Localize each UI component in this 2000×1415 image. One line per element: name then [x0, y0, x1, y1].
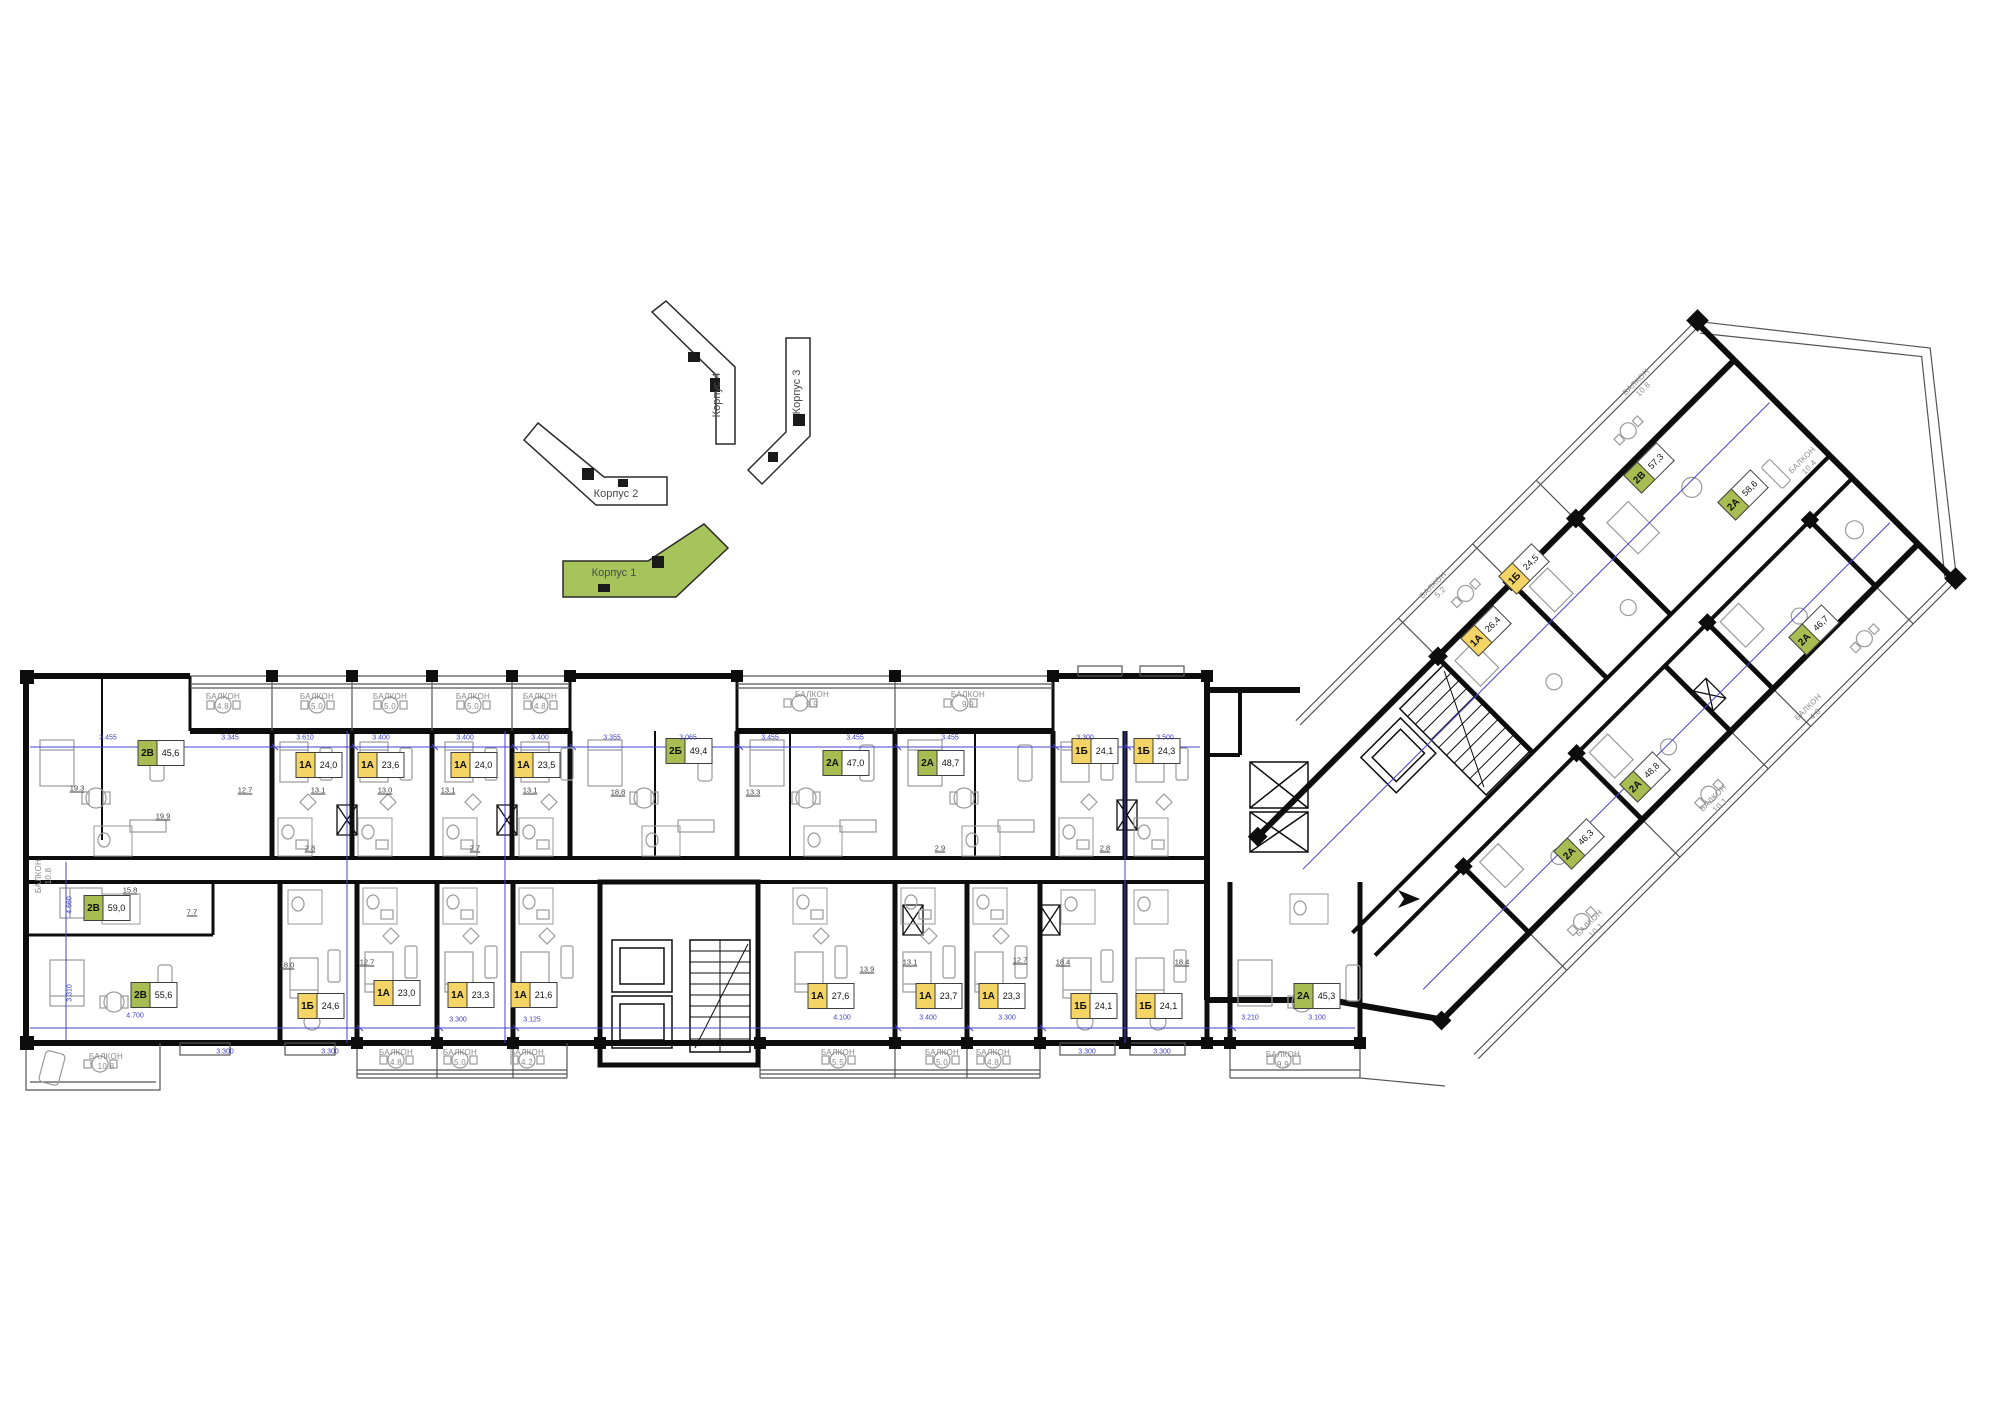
balcony-label: БАЛКОН 5.0 [282, 692, 352, 712]
apartment-badge: 2В 55,6 [131, 982, 178, 1008]
room-area-label: 2.8 [1100, 844, 1110, 853]
balcony-area: 9.9 [933, 700, 1003, 710]
apartment-badge: 2А 48,8 [1619, 751, 1671, 803]
dimension-label: 3.300 [449, 1017, 467, 1024]
apartment-type: 1А [448, 982, 468, 1008]
balcony-area: 5.0 [425, 1058, 495, 1068]
balcony-word: БАЛКОН [34, 841, 44, 911]
room-area-label: 18.4 [1175, 958, 1190, 967]
building-name: Корпус 3 [791, 370, 803, 415]
room-area-label: 18.8 [611, 788, 626, 797]
balcony-word: БАЛКОН [71, 1052, 141, 1062]
balcony-word: БАЛКОН [803, 1048, 873, 1058]
balcony-area: 5.0 [438, 702, 508, 712]
balcony-label: БАЛКОН 4.8 [188, 692, 258, 712]
balcony-word: БАЛКОН [361, 1048, 431, 1058]
dimension-label: 4.660 [67, 896, 74, 914]
dimension-label: 3.300 [1076, 735, 1094, 742]
balcony-label: БАЛКОН 4.8 [958, 1048, 1028, 1068]
room-area-label: 2.9 [935, 844, 945, 853]
site-plan-building-label: Корпус 3 [791, 370, 803, 415]
apartment-badge: 2В 59,0 [84, 895, 131, 921]
dimension-label: 3.300 [1153, 1049, 1171, 1056]
room-area-label: 13.3 [746, 788, 761, 797]
room-area-label: 7.7 [187, 908, 197, 917]
balcony-word: БАЛКОН [355, 692, 425, 702]
dimension-label: 3.400 [372, 735, 390, 742]
balcony-area: 4.8 [188, 702, 258, 712]
apartment-badge: 1А 23,5 [514, 752, 561, 778]
labels-overlay: Корпус 4 Корпус 3 Корпус 2 Корпус 1 2В 4… [0, 0, 2000, 1415]
balcony-word: БАЛКОН [1248, 1050, 1318, 1060]
apartment-area: 55,6 [151, 982, 178, 1008]
balcony-word: БАЛКОН [425, 1048, 495, 1058]
apartment-type: 1А [358, 752, 378, 778]
dimension-label: 3.300 [321, 1049, 339, 1056]
balcony-word: БАЛКОН [188, 692, 258, 702]
room-area-label: 13.1 [441, 786, 456, 795]
balcony-word: БАЛКОН [438, 692, 508, 702]
apartment-area: 24,1 [1092, 738, 1119, 764]
apartment-badge: 2В 45,6 [138, 740, 185, 766]
balcony-word: БАЛКОН [777, 690, 847, 700]
balcony-label: БАЛКОН 10.8 [71, 1052, 141, 1072]
apartment-area: 24,0 [316, 752, 343, 778]
balcony-label: БАЛКОН 10.8 [1608, 354, 1672, 418]
building-name: Корпус 2 [594, 488, 639, 500]
dimension-label: 3.500 [1156, 735, 1174, 742]
apartment-badge: 2Б 49,4 [666, 738, 713, 764]
balcony-word: БАЛКОН [505, 692, 575, 702]
room-area-label: 2.7 [470, 844, 480, 853]
apartment-type: 2А [918, 750, 938, 776]
site-plan-building-label: Корпус 1 [592, 567, 637, 579]
apartment-area: 23,0 [394, 980, 421, 1006]
dimension-label: 3.400 [531, 735, 549, 742]
apartment-type: 2В [131, 982, 151, 1008]
apartment-area: 23,3 [999, 983, 1026, 1009]
balcony-label: БАЛКОН 9.9 [1248, 1050, 1318, 1070]
room-area-label: 13.1 [311, 786, 326, 795]
apartment-area: 23,3 [468, 982, 495, 1008]
apartment-type: 2Б [666, 738, 686, 764]
balcony-label: БАЛКОН 4.8 [1780, 679, 1844, 743]
apartment-type: 1А [296, 752, 316, 778]
room-area-label: 2.8 [305, 844, 315, 853]
apartment-badge: 2В 57,3 [1623, 442, 1675, 494]
room-area-label: 18.4 [1056, 958, 1071, 967]
dimension-label: 3.455 [846, 735, 864, 742]
dimension-label: 3.400 [456, 735, 474, 742]
room-area-label: 19.3 [70, 784, 85, 793]
room-area-label: 19.9 [156, 812, 171, 821]
apartment-type: 1А [916, 983, 936, 1009]
apartment-badge: 1А 23,0 [374, 980, 421, 1006]
apartment-badge: 1Б 24,3 [1134, 738, 1181, 764]
apartment-type: 2В [138, 740, 158, 766]
apartment-type: 1А [514, 752, 534, 778]
balcony-word: БАЛКОН [492, 1048, 562, 1058]
room-area-label: 12.7 [1013, 956, 1028, 965]
balcony-word: БАЛКОН [282, 692, 352, 702]
balcony-area: 9.9 [777, 700, 847, 710]
balcony-label: БАЛКОН 5.0 [355, 692, 425, 712]
apartment-badge: 1А 24,0 [451, 752, 498, 778]
apartment-type: 2А [823, 750, 843, 776]
apartment-area: 48,7 [938, 750, 965, 776]
apartment-area: 23,7 [936, 983, 963, 1009]
balcony-label: БАЛКОН 5.0 [425, 1048, 495, 1068]
apartment-type: 1А [511, 982, 531, 1008]
apartment-badge: 1Б 24,1 [1071, 993, 1118, 1019]
balcony-area: 5.5 [803, 1058, 873, 1068]
dimension-label: 3.455 [941, 735, 959, 742]
balcony-area: 10.8 [71, 1062, 141, 1072]
dimension-label: 3.210 [1241, 1015, 1259, 1022]
balcony-area: 4.8 [505, 702, 575, 712]
apartment-badge: 1А 21,6 [511, 982, 558, 1008]
apartment-area: 24,6 [318, 993, 345, 1019]
room-area-label: 12.7 [360, 958, 375, 967]
balcony-area: 10.8 [44, 841, 54, 911]
apartment-badge: 2А 58,6 [1717, 469, 1769, 521]
apartment-type: 1А [979, 983, 999, 1009]
balcony-area: 9.9 [1248, 1060, 1318, 1070]
apartment-badge: 1Б 24,1 [1072, 738, 1119, 764]
balcony-label: БАЛКОН 4.8 [361, 1048, 431, 1068]
dimension-label: 3.300 [216, 1049, 234, 1056]
dimension-label: 3.100 [1308, 1015, 1326, 1022]
apartment-badge: 1А 24,0 [296, 752, 343, 778]
apartment-badge: 1Б 24,1 [1136, 993, 1183, 1019]
apartment-area: 23,5 [534, 752, 561, 778]
site-plan-building-label: Корпус 2 [594, 488, 639, 500]
apartment-badge: 1Б 24,5 [1498, 543, 1550, 595]
dimension-label: 3.455 [99, 735, 117, 742]
apartment-area: 24,3 [1154, 738, 1181, 764]
apartment-type: 1А [451, 752, 471, 778]
dimension-label: 3.400 [919, 1015, 937, 1022]
room-area-label: 18.0 [280, 961, 295, 970]
balcony-label: БАЛКОН 10.4 [1774, 432, 1838, 496]
balcony-word: БАЛКОН [933, 690, 1003, 700]
dimension-label: 3.125 [523, 1017, 541, 1024]
apartment-type: 1Б [1136, 993, 1156, 1019]
balcony-label: БАЛКОН 5.0 [438, 692, 508, 712]
balcony-label: БАЛКОН 4.2 [492, 1048, 562, 1068]
balcony-label: БАЛКОН 10.1 [1561, 895, 1625, 959]
building-name: Корпус 1 [592, 567, 637, 579]
dimension-label: 4.700 [126, 1013, 144, 1020]
apartment-type: 1А [808, 983, 828, 1009]
apartment-area: 47,0 [843, 750, 870, 776]
balcony-area: 4.2 [492, 1058, 562, 1068]
room-area-label: 13.1 [523, 786, 538, 795]
room-area-label: 12.7 [238, 786, 253, 795]
apartment-area: 49,4 [686, 738, 713, 764]
building-name: Корпус 4 [711, 373, 723, 418]
balcony-label: БАЛКОН 5.5 [803, 1048, 873, 1068]
apartment-area: 21,6 [531, 982, 558, 1008]
apartment-type: 2А [1294, 983, 1314, 1009]
apartment-badge: 1А 23,3 [979, 983, 1026, 1009]
dimension-label: 4.100 [833, 1015, 851, 1022]
apartment-area: 23,6 [378, 752, 405, 778]
dimension-label: 3.345 [221, 735, 239, 742]
apartment-area: 45,3 [1314, 983, 1341, 1009]
dimension-label: 3.355 [603, 735, 621, 742]
balcony-area: 5.0 [282, 702, 352, 712]
apartment-area: 24,1 [1156, 993, 1183, 1019]
apartment-type: 1Б [1072, 738, 1092, 764]
apartment-area: 27,6 [828, 983, 855, 1009]
floor-plan-page: Корпус 4 Корпус 3 Корпус 2 Корпус 1 2В 4… [0, 0, 2000, 1415]
dimension-label: 3.310 [67, 984, 74, 1002]
apartment-badge: 1Б 24,6 [298, 993, 345, 1019]
apartment-area: 24,1 [1091, 993, 1118, 1019]
apartment-badge: 1А 23,6 [358, 752, 405, 778]
dimension-label: 3.300 [998, 1015, 1016, 1022]
apartment-type: 1Б [1134, 738, 1154, 764]
apartment-badge: 2А 46,3 [1553, 818, 1605, 870]
balcony-label: БАЛКОН 10.8 [34, 841, 54, 911]
apartment-area: 24,0 [471, 752, 498, 778]
balcony-label: БАЛКОН 4.8 [505, 692, 575, 712]
balcony-label: БАЛКОН 9.9 [933, 690, 1003, 710]
balcony-label: БАЛКОН 9.9 [777, 690, 847, 710]
apartment-type: 1Б [1071, 993, 1091, 1019]
dimension-label: 3.300 [1078, 1049, 1096, 1056]
apartment-type: 1А [374, 980, 394, 1006]
apartment-badge: 1А 23,7 [916, 983, 963, 1009]
apartment-area: 59,0 [104, 895, 131, 921]
dimension-label: 3.065 [679, 735, 697, 742]
apartment-badge: 2А 46,7 [1788, 604, 1840, 656]
balcony-label: БАЛКОН 10.1 [1685, 770, 1749, 834]
apartment-area: 45,6 [158, 740, 185, 766]
balcony-word: БАЛКОН [958, 1048, 1028, 1058]
balcony-label: БАЛКОН 5.2 [1405, 557, 1469, 621]
apartment-badge: 2А 47,0 [823, 750, 870, 776]
dimension-label: 3.455 [761, 735, 779, 742]
site-plan-building-label: Корпус 4 [711, 373, 723, 418]
apartment-badge: 1А 26,4 [1460, 605, 1512, 657]
room-area-label: 13.0 [378, 786, 393, 795]
apartment-badge: 1А 27,6 [808, 983, 855, 1009]
room-area-label: 15.8 [123, 886, 138, 895]
room-area-label: 13.1 [903, 958, 918, 967]
balcony-area: 5.0 [355, 702, 425, 712]
apartment-type: 2В [84, 895, 104, 921]
dimension-label: 3.610 [296, 735, 314, 742]
balcony-area: 4.8 [958, 1058, 1028, 1068]
apartment-badge: 2А 48,7 [918, 750, 965, 776]
room-area-label: 13.9 [860, 965, 875, 974]
apartment-badge: 2А 45,3 [1294, 983, 1341, 1009]
balcony-area: 4.8 [361, 1058, 431, 1068]
apartment-type: 1Б [298, 993, 318, 1019]
apartment-badge: 1А 23,3 [448, 982, 495, 1008]
